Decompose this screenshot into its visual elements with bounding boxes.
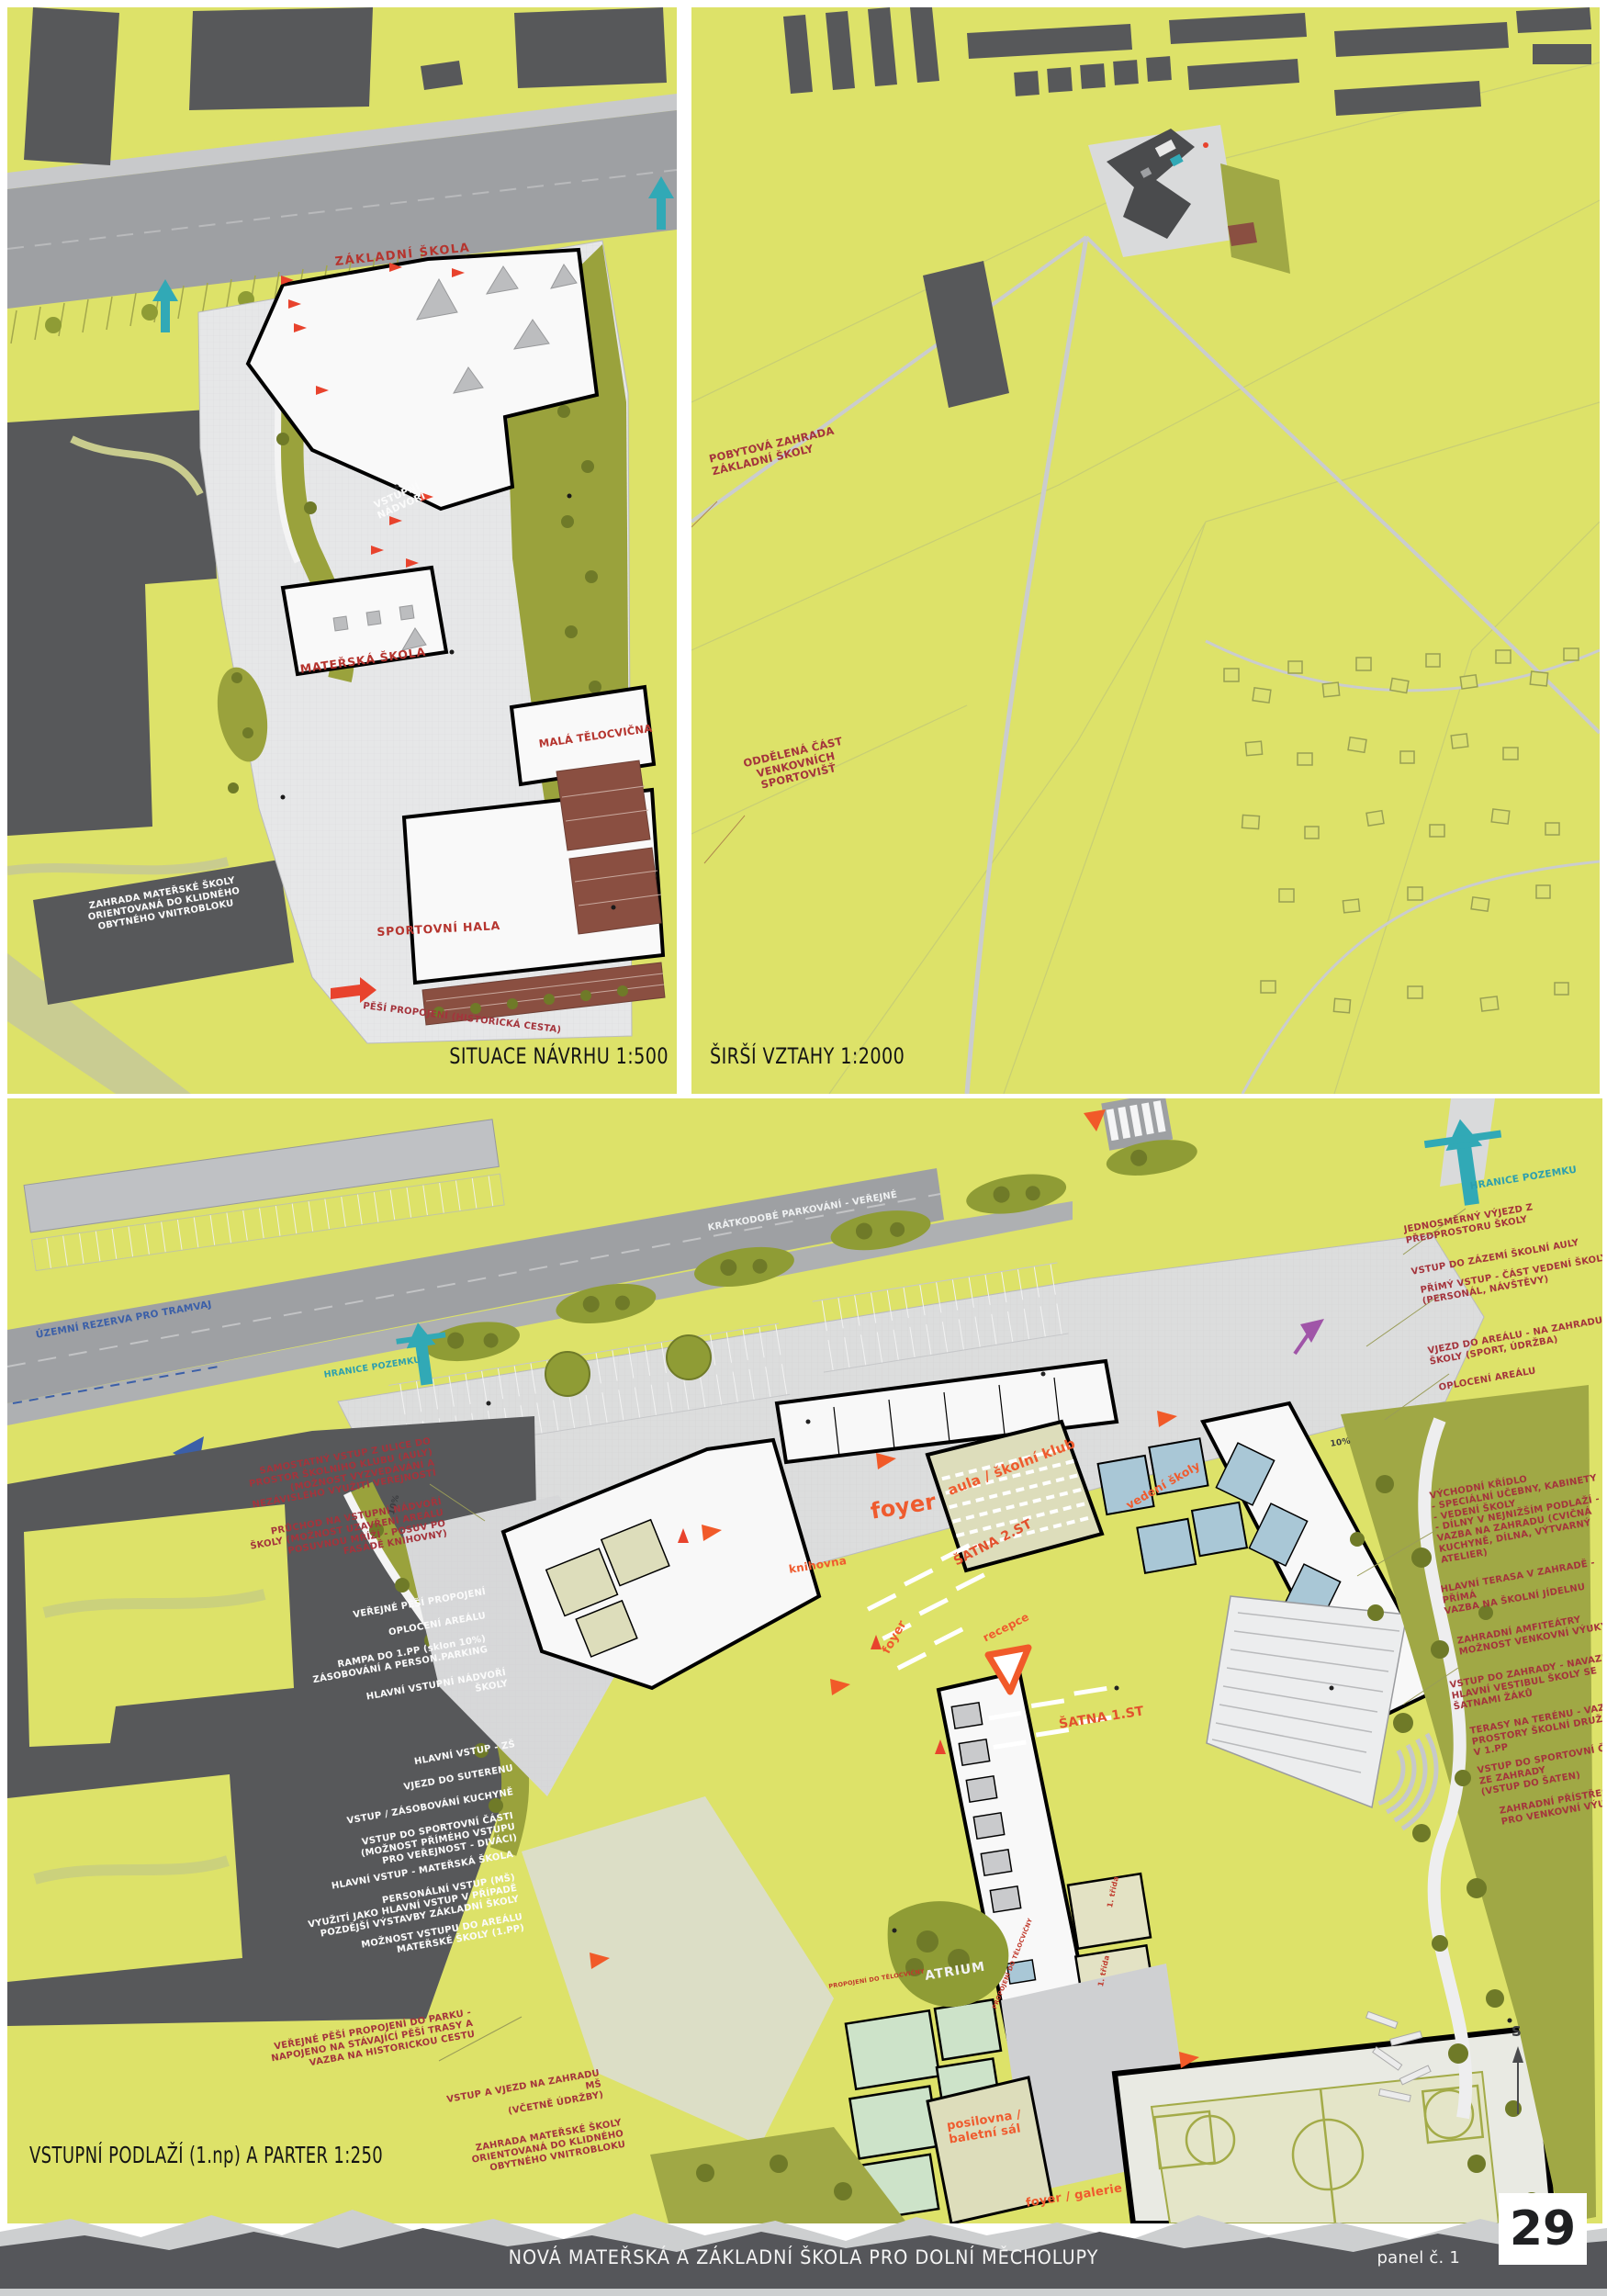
panel-situace: ZÁKLADNÍ ŠKOLA VSTUPNÍ NÁDVOŘÍ MATEŘSKÁ …	[7, 7, 677, 1094]
panel-number: 29	[1510, 2201, 1576, 2257]
footer-panel-label: panel č. 1	[1313, 2248, 1460, 2268]
panel-number-box: 29	[1499, 2193, 1587, 2265]
vztahy-map	[691, 7, 1600, 1094]
caption-vztahy: ŠIRŠÍ VZTAHY 1:2000	[710, 1043, 905, 1069]
caption-situace: SITUACE NÁVRHU 1:500	[419, 1043, 669, 1069]
footer-silhouette	[0, 2191, 1607, 2296]
label-north: S	[1511, 2024, 1522, 2041]
plaza-tree	[667, 1335, 711, 1379]
footer: NOVÁ MATEŘSKÁ A ZÁKLADNÍ ŠKOLA PRO DOLNÍ…	[0, 2191, 1607, 2296]
plaza-tree	[545, 1352, 590, 1396]
title-podlazi: VSTUPNÍ PODLAŽÍ (1.np) A PARTER 1:250	[29, 2142, 383, 2168]
panel-vztahy: POBYTOVÁ ZAHRADA ZÁKLADNÍ ŠKOLY ODDĚLENÁ…	[691, 7, 1600, 1094]
competition-panel-sheet: ZÁKLADNÍ ŠKOLA VSTUPNÍ NÁDVOŘÍ MATEŘSKÁ …	[0, 0, 1607, 2296]
panel-podlazi: ÚZEMNÍ REZERVA PRO TRAMVAJ KRÁTKODOBÉ PA…	[7, 1098, 1602, 2223]
